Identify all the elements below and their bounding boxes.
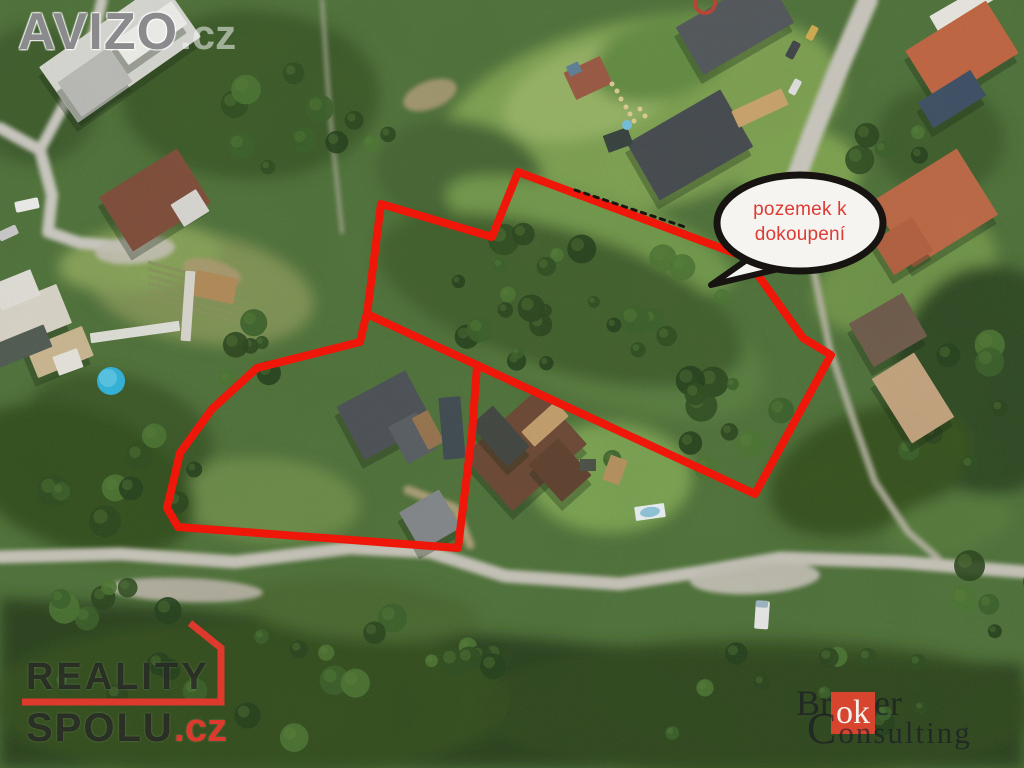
callout-bubble-text: pozemek k dokoupení [717,197,883,247]
avizo-logo-tld: .cz [180,11,236,59]
realityspolu-watermark-line2: SPOLU.cz [26,706,227,751]
avizo-logo-text: AVIZO [18,2,178,62]
broker-line2-initial: C [807,704,838,753]
broker-line2-rest: onsulting [838,715,971,750]
broker-watermark-line2: Consulting [807,703,972,754]
realityspolu-watermark-line1: REALITY [26,656,210,699]
spolu-text: SPOLU [26,706,174,750]
aerial-photo [0,0,1024,768]
aerial-listing-image: pozemek k dokoupení AVIZO.cz REALITY SPO… [0,0,1024,768]
spolu-tld: .cz [174,706,227,750]
avizo-watermark: AVIZO.cz [18,2,236,62]
callout-line2: dokoupení [717,222,883,247]
callout-line1: pozemek k [717,197,883,222]
